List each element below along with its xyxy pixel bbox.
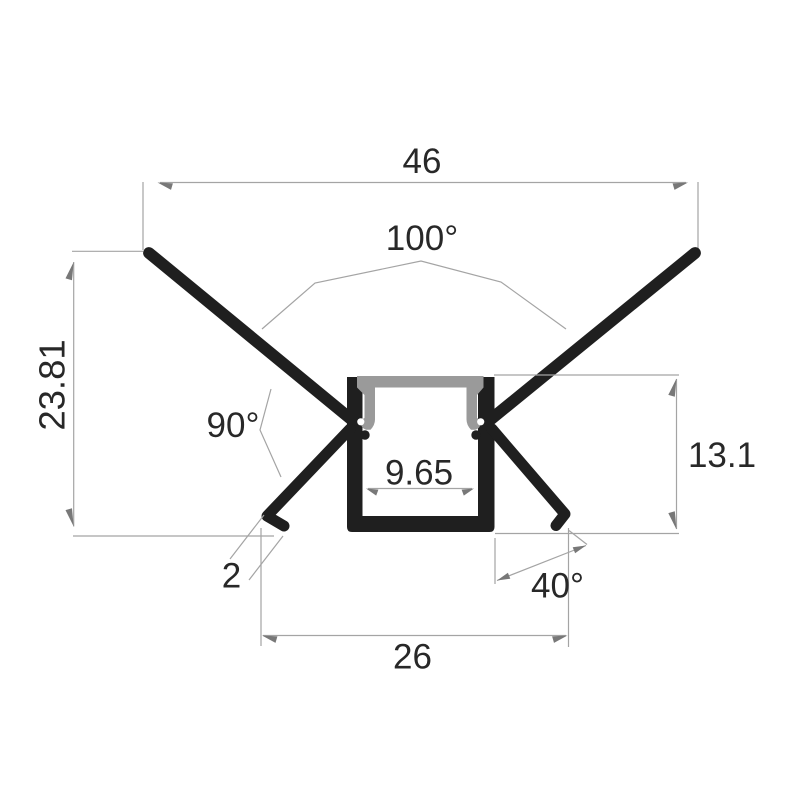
svg-text:46: 46 bbox=[403, 142, 442, 181]
svg-text:23.81: 23.81 bbox=[32, 339, 73, 430]
svg-text:100°: 100° bbox=[386, 219, 458, 258]
svg-text:2: 2 bbox=[222, 557, 241, 596]
svg-text:13.1: 13.1 bbox=[688, 436, 756, 475]
svg-text:40°: 40° bbox=[531, 567, 584, 606]
svg-text:90°: 90° bbox=[207, 406, 260, 445]
svg-text:26: 26 bbox=[393, 638, 432, 677]
svg-text:9.65: 9.65 bbox=[385, 454, 453, 493]
